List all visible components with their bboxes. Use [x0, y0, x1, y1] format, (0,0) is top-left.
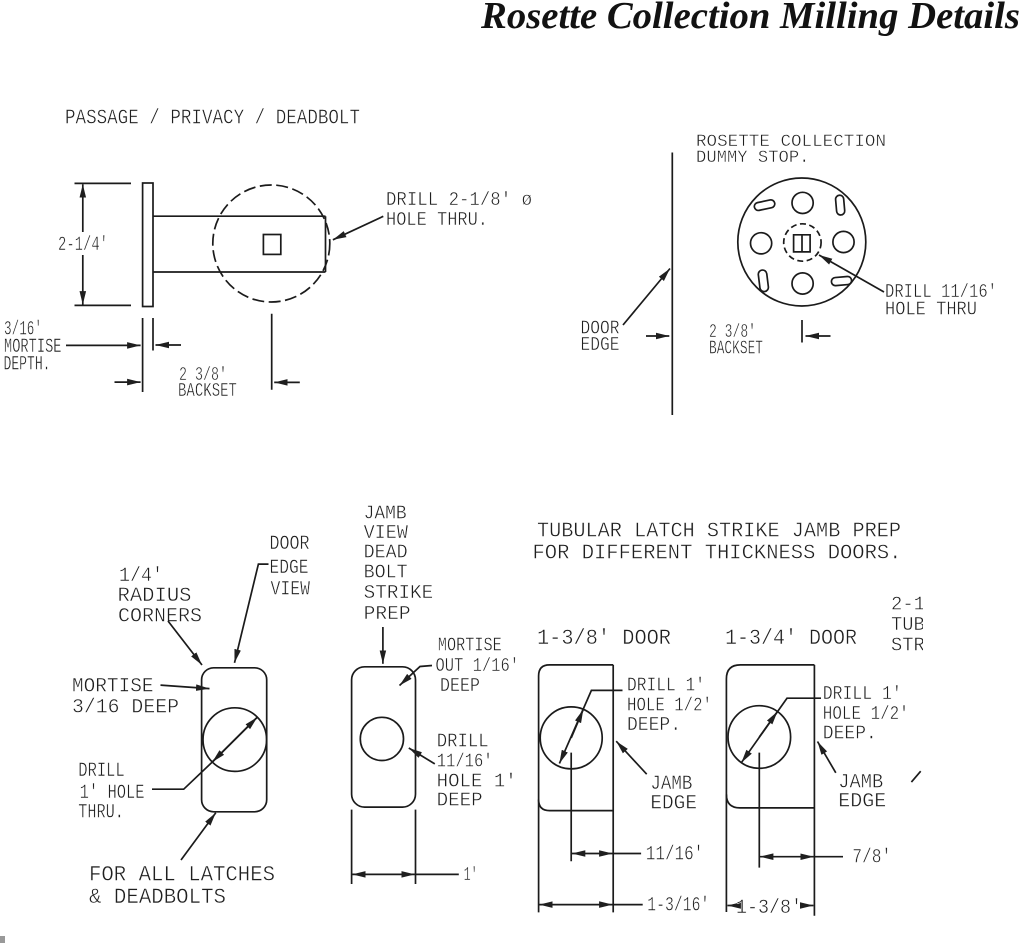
svg-text:DEAD: DEAD — [364, 541, 408, 563]
svg-text:DUMMY STOP.: DUMMY STOP. — [696, 148, 810, 168]
svg-text:1-3/4' DOOR: 1-3/4' DOOR — [725, 626, 857, 651]
svg-text:& DEADBOLTS: & DEADBOLTS — [89, 885, 226, 910]
svg-text:DEEP.: DEEP. — [627, 714, 681, 736]
svg-text:STRIKE: STRIKE — [364, 582, 434, 604]
svg-text:MORTISE: MORTISE — [72, 676, 154, 699]
svg-text:THRU.: THRU. — [78, 802, 124, 825]
svg-text:7/8': 7/8' — [852, 847, 891, 870]
svg-text:OUT 1/16': OUT 1/16' — [436, 655, 520, 677]
svg-text:DRILL: DRILL — [78, 760, 124, 783]
svg-text:2-1: 2-1 — [891, 594, 925, 616]
svg-text:TUBULAR LATCH STRIKE JAMB PREP: TUBULAR LATCH STRIKE JAMB PREP — [537, 520, 901, 544]
svg-text:FOR DIFFERENT THICKNESS DOORS.: FOR DIFFERENT THICKNESS DOORS. — [533, 542, 902, 566]
svg-text:DEEP: DEEP — [437, 790, 483, 812]
svg-text:HOLE THRU: HOLE THRU — [885, 299, 977, 321]
svg-text:STRI: STRI — [891, 635, 936, 657]
svg-text:Rosette Collection Milling Det: Rosette Collection Milling Details — [480, 0, 1020, 37]
svg-text:PASSAGE / PRIVACY / DEADBOLT: PASSAGE / PRIVACY / DEADBOLT — [65, 108, 360, 131]
svg-text:CORNERS: CORNERS — [118, 606, 202, 629]
svg-text:DRILL 1': DRILL 1' — [627, 675, 705, 697]
svg-text:BOLT: BOLT — [364, 562, 408, 584]
svg-text:VIEW: VIEW — [271, 579, 311, 602]
svg-text:DOOR: DOOR — [270, 533, 310, 556]
svg-text:1': 1' — [464, 864, 478, 886]
svg-text:EDGE: EDGE — [270, 557, 309, 580]
svg-text:TUBU: TUBU — [891, 614, 936, 636]
svg-text:11/16': 11/16' — [437, 751, 493, 773]
svg-text:1-3/16': 1-3/16' — [647, 895, 709, 918]
svg-text:HOLE THRU.: HOLE THRU. — [386, 209, 488, 231]
svg-text:1-3/8': 1-3/8' — [736, 897, 802, 920]
svg-text:MORTISE: MORTISE — [438, 635, 502, 657]
svg-text:BACKSET: BACKSET — [709, 338, 763, 360]
svg-text:FOR ALL LATCHES: FOR ALL LATCHES — [89, 863, 275, 888]
svg-text:2-1/4': 2-1/4' — [58, 234, 108, 257]
svg-text:1-3/8' DOOR: 1-3/8' DOOR — [537, 626, 671, 651]
svg-text:EDGE: EDGE — [581, 334, 620, 356]
svg-text:3/16 DEEP: 3/16 DEEP — [72, 697, 179, 720]
svg-text:EDGE: EDGE — [838, 791, 886, 814]
svg-text:DRILL 1': DRILL 1' — [823, 683, 902, 705]
svg-text:11/16': 11/16' — [646, 844, 704, 867]
svg-text:DEEP.: DEEP. — [823, 723, 877, 745]
svg-text:DRILL: DRILL — [437, 731, 489, 753]
svg-text:DRILL 2-1/8' ø: DRILL 2-1/8' ø — [386, 189, 532, 211]
svg-text:EDGE: EDGE — [650, 793, 697, 816]
svg-text:BACKSET: BACKSET — [178, 380, 237, 402]
svg-text:DEPTH.: DEPTH. — [4, 354, 51, 377]
svg-text:PREP: PREP — [364, 603, 411, 625]
svg-text:DEEP: DEEP — [440, 675, 480, 697]
